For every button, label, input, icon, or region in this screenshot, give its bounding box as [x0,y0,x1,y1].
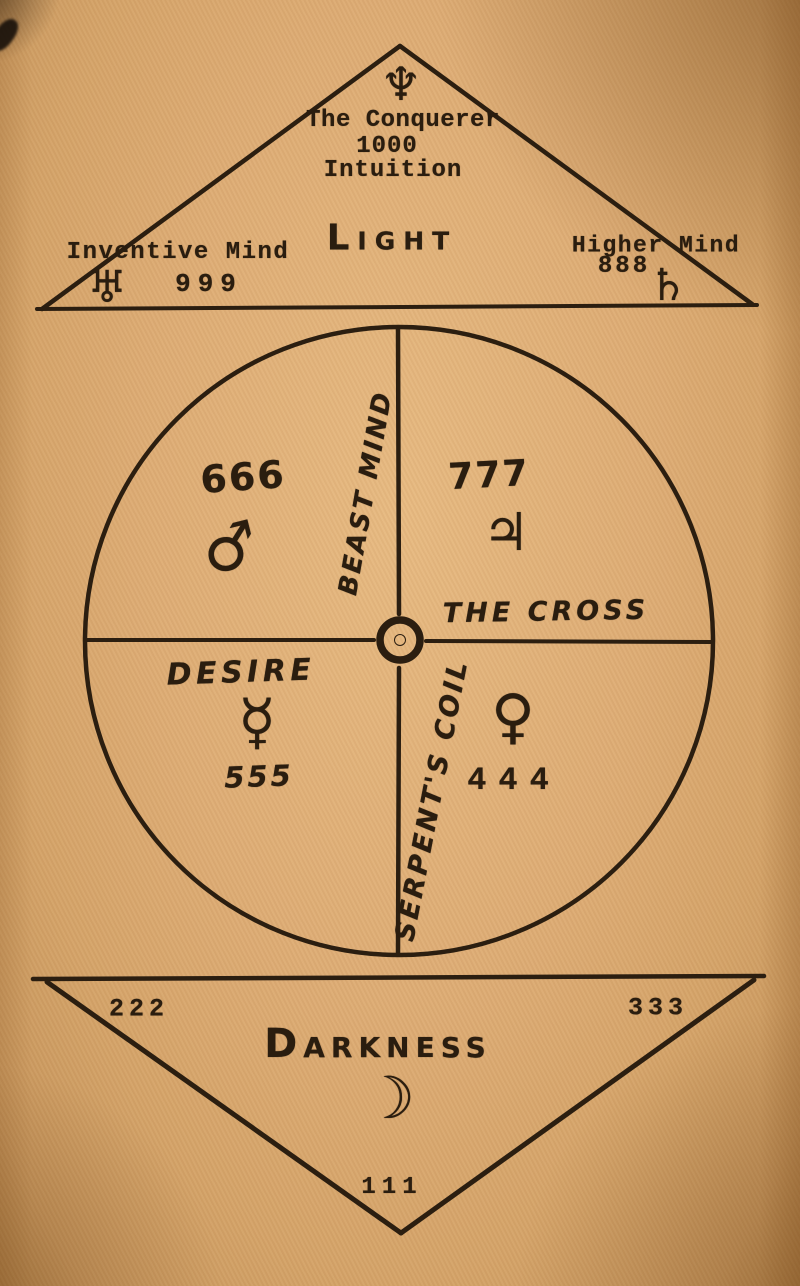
crescent-moon-icon: ☽ [363,1069,415,1127]
horizontal-axis-right [426,641,711,642]
conquerer-number: 1000 [356,135,418,159]
intuition-label: Intuition [324,159,463,183]
quadrant-444-number: 444 [467,765,561,797]
uranus-icon: ♅ [87,266,126,310]
light-label: LIGHT [327,220,457,256]
saturn-icon: ♄ [648,264,687,308]
neptune-icon: ♆ [380,61,421,107]
darkness-label: DARKNESS [264,1025,492,1065]
scanned-book-page: { "page": { "paper_color": "#dcab74", "i… [0,0,800,1286]
darkness-333-number: 333 [628,996,688,1021]
darkness-222-number: 222 [109,997,169,1022]
inventive-mind-number: 999 [175,271,243,297]
quadrant-555-number: 555 [224,761,295,792]
vertical-axis-upper [398,328,399,614]
darkness-triangle-right-side [401,980,754,1233]
darkness-111-number: 111 [361,1176,422,1200]
quadrant-777-number: 777 [448,456,531,496]
conquerer-title: The Conquerer [306,109,500,133]
darkness-triangle-top [33,976,764,979]
higher-mind-number: 888 [598,255,650,279]
the-cross-label: THE CROSS [443,597,650,628]
sun-symbol-dot [395,635,406,646]
jupiter-icon: ♃ [483,507,530,559]
sun-symbol-ring [380,620,420,660]
venus-icon: ♀ [491,687,535,747]
mercury-icon: ☿ [238,691,276,753]
darkness-triangle-left-side [47,982,401,1233]
quadrant-666-number: 666 [199,455,287,499]
